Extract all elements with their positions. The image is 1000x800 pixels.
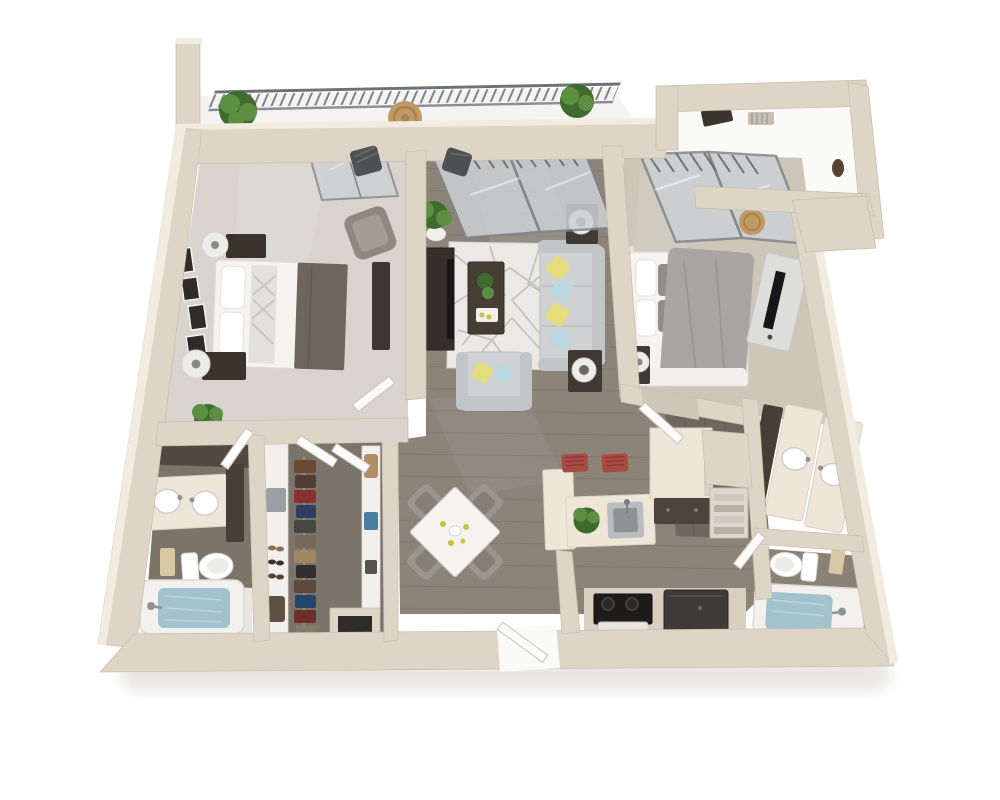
- media-console: [426, 248, 454, 350]
- double-vanity: [145, 474, 230, 530]
- bar-stool: [602, 453, 629, 472]
- gray-duvet: [660, 247, 755, 383]
- alcove-west-wall: [656, 86, 678, 150]
- nightstand: [226, 234, 266, 258]
- linen-closet: [702, 430, 752, 538]
- flat-screen-tv: [447, 259, 454, 339]
- storage-box: [266, 488, 286, 512]
- wall-bed1-living: [406, 150, 426, 400]
- floorplan-canvas: [0, 0, 1000, 800]
- sink: [153, 489, 180, 514]
- bathtub: [140, 580, 244, 634]
- sofa-back: [592, 246, 605, 366]
- accent-armchair: [456, 352, 532, 411]
- pillow: [636, 260, 656, 296]
- south-wall: [100, 628, 894, 672]
- pillow: [219, 312, 244, 355]
- side-table-bottom: [568, 350, 602, 392]
- alcove-step-wall: [792, 196, 876, 252]
- bed1-doorway: [352, 420, 406, 442]
- floorplan-3d-render: [0, 0, 1000, 800]
- decor-vase: [832, 159, 844, 177]
- centerpiece: [449, 526, 461, 536]
- accent-blanket: [294, 263, 348, 371]
- balcony-end-wall: [176, 42, 200, 130]
- sink: [192, 491, 219, 516]
- wall-unit: [748, 112, 774, 125]
- dresser: [372, 262, 390, 350]
- storage-box: [364, 512, 378, 530]
- base-cabinet: [654, 498, 710, 524]
- pillow: [636, 300, 656, 336]
- coffee-table: [468, 262, 504, 334]
- wicker-chair: [739, 209, 765, 235]
- dining-area: [405, 482, 505, 582]
- pillow: [220, 266, 245, 309]
- alcove-north-wall: [658, 80, 870, 112]
- sheet-fold: [634, 368, 746, 383]
- tray: [476, 308, 498, 322]
- refrigerator: [664, 590, 728, 634]
- wall-closet-east: [382, 436, 398, 642]
- linen-cabinet: [226, 464, 244, 542]
- range-oven: [594, 594, 652, 631]
- patterned-throw: [248, 265, 277, 364]
- kitchen-sink: [607, 499, 644, 539]
- bar-stool: [562, 453, 589, 472]
- towel-stack: [160, 548, 175, 576]
